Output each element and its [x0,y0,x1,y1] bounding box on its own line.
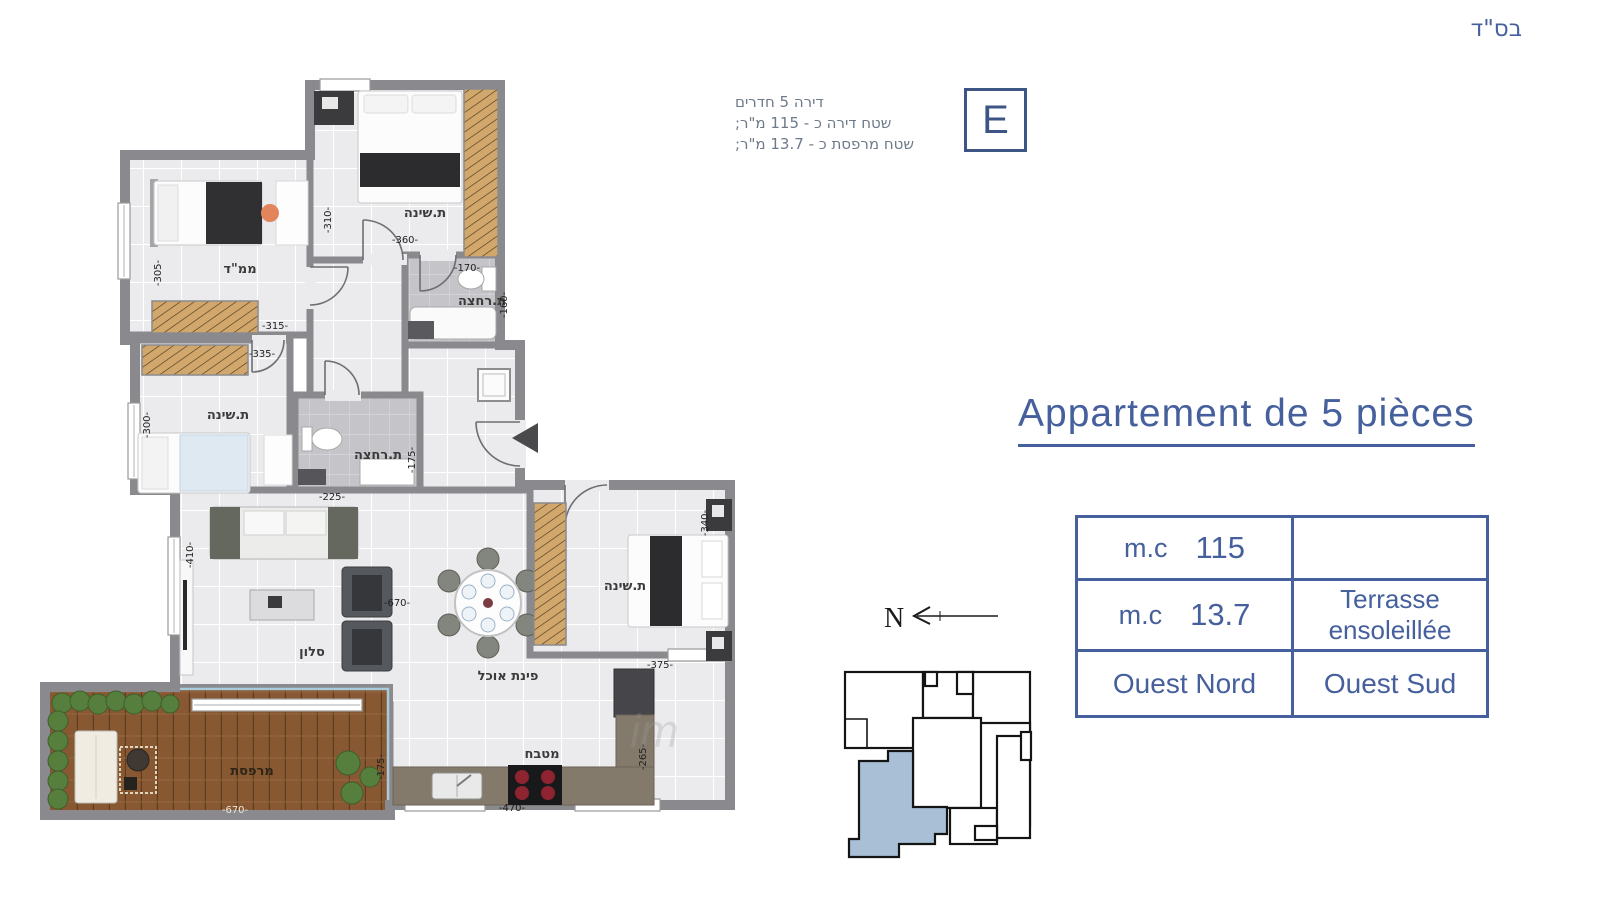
burner [515,770,529,784]
dim-kitchen-h: -470- [499,803,526,814]
dim-master-v: -340- [700,509,711,536]
room-label-living: סלון [299,645,325,660]
unit-info: דירה 5 חדרים שטח דירה כ - 115 מ"ר; שטח מ… [735,88,952,155]
desk [264,435,292,485]
north-label: N [884,603,904,634]
plate [481,574,495,588]
chair [477,636,499,658]
chair [477,548,499,570]
room-label-terrace: מרפסת [230,764,274,779]
sofa-arm [328,507,358,559]
terrace-note-cell: Terrasse ensoleillée [1294,581,1486,649]
spec-table: m.c 115 m.c 13.7 Terrasse ensoleillée Ou… [1075,515,1489,718]
area-note-cell [1294,518,1486,578]
room-label-mamad: ממ"ד [223,262,256,277]
cooktop [508,765,562,805]
wardrobe [464,89,498,257]
spec-row-orientation: Ouest Nord Ouest Sud [1078,652,1486,715]
terrace-note-line1: Terrasse [1329,584,1452,615]
chair [261,204,279,222]
tv [183,580,187,650]
orientation-right: Ouest Sud [1294,652,1486,715]
unit-badge-group: דירה 5 חדרים שטח דירה כ - 115 מ"ר; שטח מ… [735,88,1027,155]
spec-row-terrace: m.c 13.7 Terrasse ensoleillée [1078,581,1486,652]
dim-terrace-v: -175- [376,753,387,780]
orientation-left: Ouest Nord [1078,652,1294,715]
bed-runner [360,153,460,187]
bed-blanket [206,182,262,244]
north-compass: N [870,595,1005,640]
nightstand-item [712,505,724,517]
dim-bedroom-left-h: -335- [249,349,276,360]
area-unit: m.c [1124,533,1168,564]
burner [541,786,555,800]
closet [142,345,248,375]
pillow [702,541,722,577]
room-label-bedroom-top: ת.שינה [404,206,446,221]
unit-letter: E [982,98,1009,143]
pillow [412,95,456,113]
unit-info-line: דירה 5 חדרים [735,92,952,113]
room-label-kitchen: מטבח [524,747,559,762]
bed-runner [650,536,682,626]
sofa-cushion [286,511,326,535]
stool [124,777,137,790]
unit-info-line: שטח דירה כ - 115 מ"ר; [735,113,952,134]
pillow [702,583,722,619]
plate [481,618,495,632]
table-item [268,596,282,608]
sofa-arm [210,507,240,559]
dim-bedroom-top-h: -360- [392,235,419,246]
toilet-icon [312,428,342,450]
window [320,79,370,91]
page: בס"ד דירה 5 חדרים שטח דירה כ - 115 מ"ר; … [0,0,1600,900]
nightstand-item [712,637,724,649]
burner [515,786,529,800]
pillow [364,95,408,113]
closet [152,301,258,333]
pillow [142,437,168,489]
terrace-value: 13.7 [1190,597,1250,633]
chair [438,570,460,592]
desk [276,181,308,245]
dim-bath-mid-h: -225- [319,492,346,503]
spec-row-area: m.c 115 [1078,518,1486,581]
area-cell: m.c 115 [1078,518,1294,578]
dim-living-h: -670- [384,598,411,609]
toilet-tank [302,427,312,451]
terrace-unit: m.c [1119,600,1163,631]
armchair-seat [352,629,382,665]
bed-blanket [180,435,248,491]
bsd-text: בס"ד [1471,16,1522,42]
burner [541,770,555,784]
dim-bath-top-v: -160- [499,291,510,318]
dim-mamad-h: -315- [262,321,289,332]
bath-mat [408,321,434,339]
dim-bedroom-left-v: -300- [142,411,153,438]
dresser-item [322,97,338,109]
sofa-cushion [244,511,284,535]
chair [438,614,460,636]
room-label-master: ת.שינה [604,579,646,594]
building-key-plan [825,648,1037,863]
dim-mamad-v: -305- [153,259,164,286]
bath-mat [298,469,326,485]
armchair-seat [352,575,382,611]
dim-living-v: -410- [185,541,196,568]
dim-bedroom-top-v: -310- [323,206,334,233]
unit-letter-badge: E [964,88,1027,152]
pillow [158,185,178,241]
unit-info-line: שטח מרפסת כ - 13.7 מ"ר; [735,134,952,155]
dim-bath-top-h: -170- [454,263,481,274]
dim-master-h: -375- [647,660,674,671]
room-label-bedroom-left: ת.שינה [207,408,249,423]
plate [500,607,514,621]
outdoor-table [127,749,149,771]
plate [500,585,514,599]
centerpiece [483,598,493,608]
closet [534,503,566,645]
floorplan: im ת.שינה ממ"ד ת.שינה ת.רחצה ת.רחצה סלון… [30,55,760,845]
dim-bath-mid-v: -175- [407,446,418,473]
room-label-dining: פינת אוכל [478,669,539,684]
plate [462,585,476,599]
terrace-note-line2: ensoleillée [1329,615,1452,646]
dim-kitchen-v: -265- [638,743,649,770]
area-value: 115 [1196,530,1245,566]
dim-terrace-h: -670- [222,805,249,816]
page-title: Appartement de 5 pièces [1018,392,1475,447]
plate [462,607,476,621]
terrace-area-cell: m.c 13.7 [1078,581,1294,649]
room-label-bath-mid: ת.רחצה [354,448,402,463]
